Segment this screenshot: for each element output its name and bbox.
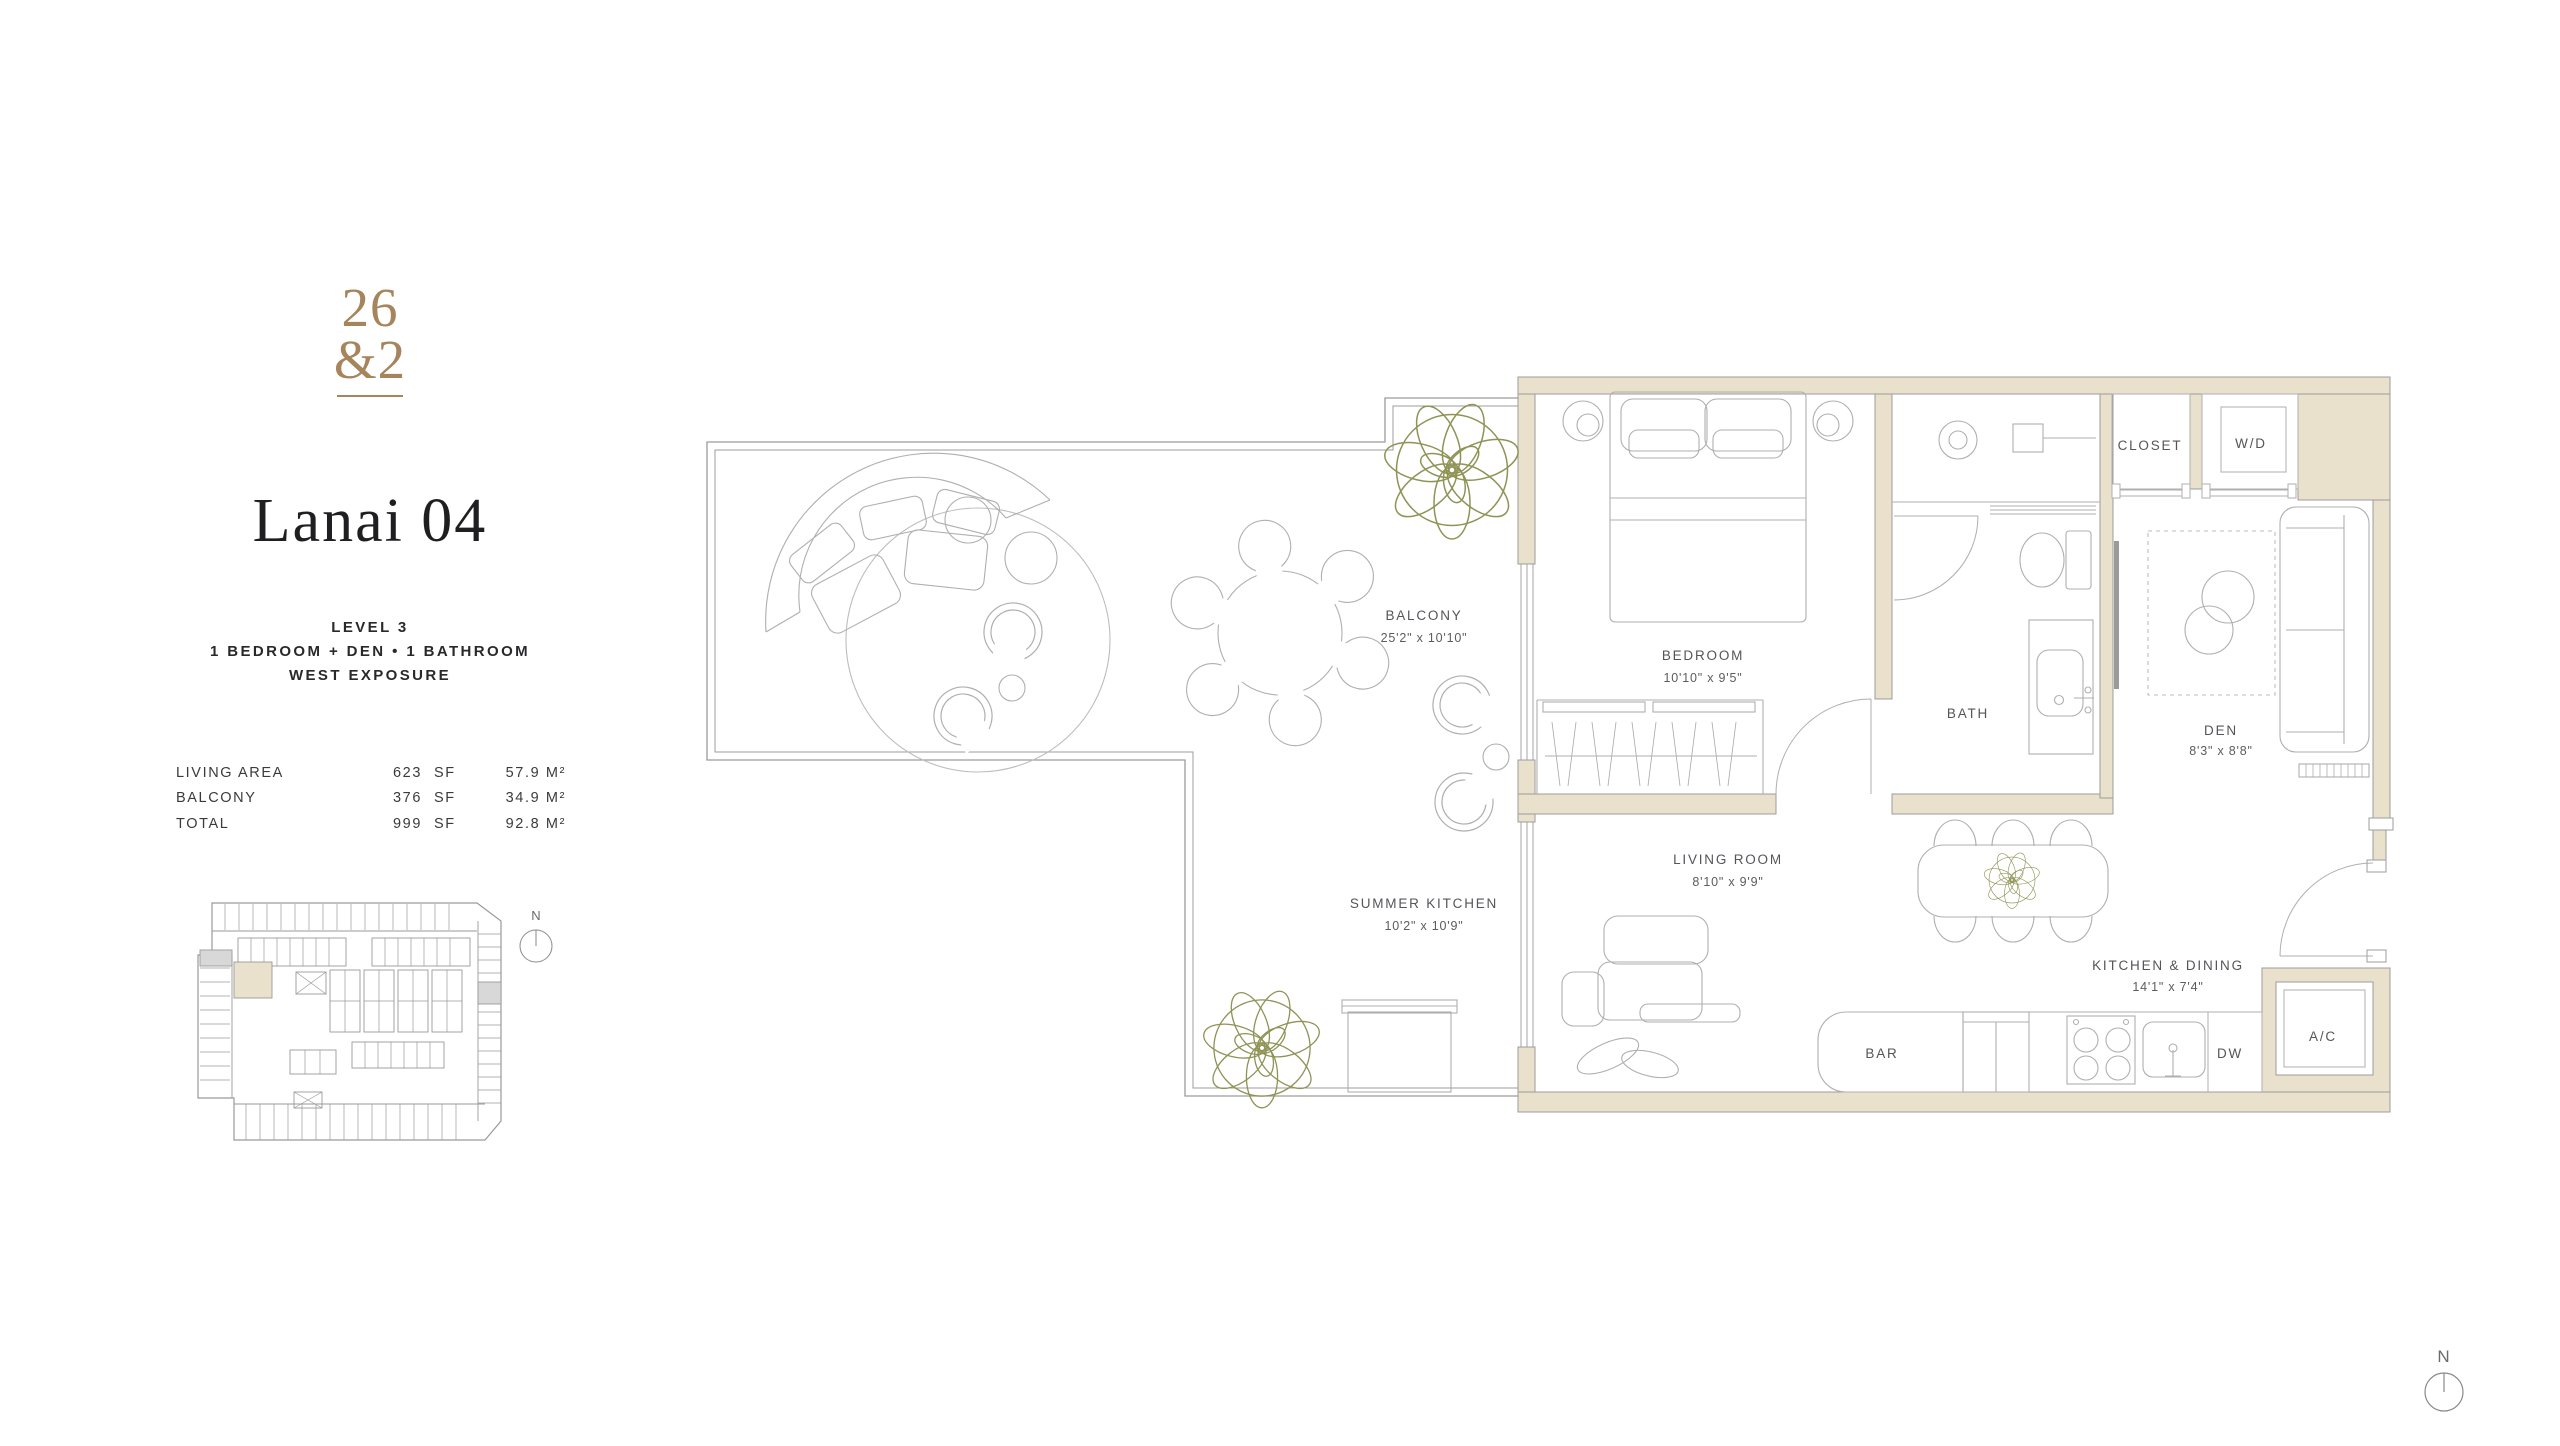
stove-knob [2124, 1020, 2129, 1025]
window-sill [2369, 818, 2393, 830]
shower-control [2013, 424, 2043, 452]
table-wreath [1983, 851, 2042, 909]
label-bar: BAR [1865, 1046, 1898, 1061]
plant-top [1381, 399, 1523, 539]
tv [2114, 541, 2119, 689]
bath-fixtures [1939, 421, 2096, 754]
closet-shelf [1543, 702, 1645, 712]
slider-cap [2112, 484, 2120, 498]
den-side-table [2185, 606, 2233, 654]
slider-cap [2182, 484, 2190, 498]
sectional-cushion [786, 520, 857, 586]
toilet-tank [2066, 531, 2091, 589]
shower-drain-inner [1949, 431, 1967, 449]
label-dw: DW [2217, 1046, 2243, 1061]
floorplan-drawing: BALCONY 25'2" x 10'10" SUMMER KITCHEN 10… [0, 0, 2560, 1446]
bed-sheet-lines [1610, 498, 1806, 520]
wall-closet-divider [2190, 394, 2202, 489]
kitchen-faucet [2165, 1050, 2181, 1076]
closet-hangers [1552, 722, 1736, 786]
slider-cap [2288, 484, 2296, 498]
slider-cap [2202, 484, 2210, 498]
den-sofa-cushions [2286, 515, 2344, 744]
dining-chair [1992, 916, 2034, 942]
burner [2074, 1056, 2098, 1080]
key-plan [198, 903, 501, 1140]
round-table-chair [1235, 516, 1296, 582]
window-chair [1423, 758, 1509, 843]
key-plan-unit-highlight [234, 962, 272, 998]
living-sofa-back [1604, 916, 1708, 964]
burner [2106, 1028, 2130, 1052]
window-chair [1426, 669, 1502, 741]
doors [1776, 516, 2373, 956]
label-ac: A/C [2309, 1029, 2337, 1044]
page-compass-n: N [2437, 1347, 2450, 1366]
wall-left-pier-top [1518, 394, 1535, 564]
round-table-chair [1176, 649, 1254, 726]
round-table-chair [1306, 540, 1384, 617]
dims-balcony: 25'2" x 10'10" [1381, 631, 1468, 645]
sectional-caps [766, 500, 1050, 632]
floorplan-sheet: 26 &2 Lanai 04 LEVEL 3 1 BEDROOM + DEN •… [0, 0, 2560, 1446]
wall-den-left [2100, 394, 2113, 798]
sectional-seat [808, 551, 904, 636]
nightstand-lamp-inner [1577, 414, 1599, 436]
label-bedroom: BEDROOM [1662, 648, 1744, 663]
shower-slider-track [1990, 506, 2096, 514]
dims-kitchen-dining: 14'1" x 7'4" [2132, 980, 2203, 994]
key-plan-cluster-lines [432, 970, 462, 1032]
key-plan-core-x [294, 1092, 322, 1108]
key-plan-stalls-left [200, 968, 230, 1080]
plants [1200, 399, 2041, 1108]
closet-slider [2116, 490, 2186, 496]
label-wd: W/D [2235, 436, 2267, 451]
room-labels: BALCONY 25'2" x 10'10" SUMMER KITCHEN 10… [1350, 436, 2337, 1061]
shower-drain [1939, 421, 1977, 459]
sectional-seat [903, 529, 988, 591]
kitchen-sink [2143, 1022, 2205, 1077]
pillow-inner [1713, 430, 1783, 458]
key-plan-stalls [385, 938, 450, 966]
small-table [999, 675, 1025, 701]
dims-den: 8'3" x 8'8" [2189, 744, 2252, 758]
bath-door [1894, 516, 1978, 600]
key-plan-stalls [365, 1042, 430, 1068]
key-plan-stalls-top [225, 904, 449, 930]
sectional-cushion [931, 488, 1001, 536]
living-window [1521, 822, 1533, 1047]
bed [1610, 392, 1806, 622]
label-kitchen-dining: KITCHEN & DINING [2092, 958, 2244, 973]
dining-chair [1934, 916, 1976, 942]
label-balcony: BALCONY [1385, 608, 1462, 623]
key-plan-gray-area [478, 982, 501, 1004]
pillow-inner [1629, 430, 1699, 458]
key-plan-compass: N [520, 908, 552, 962]
side-table [945, 497, 991, 543]
closet-shelf [1653, 702, 1755, 712]
label-living-room: LIVING ROOM [1673, 852, 1783, 867]
pillow [1705, 399, 1791, 451]
key-plan-cluster-lines [330, 970, 360, 1032]
key-plan-core-lines [305, 1050, 320, 1074]
wd-slider [2208, 490, 2292, 496]
wall-topright-block [2298, 394, 2390, 500]
label-den: DEN [2204, 723, 2238, 738]
toilet-bowl [2020, 533, 2064, 587]
sectional-cushion [858, 495, 928, 542]
sink [2037, 650, 2083, 716]
key-plan-stalls-right [478, 934, 501, 1103]
door-jamb-top [2367, 860, 2386, 872]
plant-bottom [1200, 986, 1323, 1107]
pillow [1621, 399, 1707, 451]
sectional-back-inner [799, 477, 1006, 612]
balcony-furniture [766, 453, 1509, 1092]
entry-door [2280, 863, 2373, 956]
burner [2106, 1056, 2130, 1080]
sink-drain [2055, 696, 2064, 705]
round-table-chair [1264, 684, 1325, 750]
dining-chair [2050, 916, 2092, 942]
dims-summer-kitchen: 10'2" x 10'9" [1385, 919, 1464, 933]
den-rug [2148, 531, 2275, 695]
faucet-handle [2085, 687, 2091, 693]
decor-leaf [1573, 1031, 1644, 1082]
living-furniture [1562, 916, 1740, 1083]
label-bath: BATH [1947, 706, 1989, 721]
key-compass-n: N [531, 908, 540, 923]
fridge-doors [1963, 1022, 2029, 1092]
key-plan-gray-area [200, 950, 232, 966]
key-plan-cluster-lines [364, 970, 394, 1032]
living-chaise [1640, 1004, 1740, 1022]
dims-bedroom: 10'10" x 9'5" [1664, 671, 1743, 685]
dims-living-room: 8'10" x 9'9" [1692, 875, 1763, 889]
vent-grille-lines [2306, 764, 2362, 777]
stove-knob [2074, 1020, 2079, 1025]
wall-bedroom-right [1875, 394, 1892, 699]
bedroom-furniture [1537, 392, 1853, 794]
wall-hall-left [1518, 794, 1776, 814]
dining-chair [2050, 820, 2092, 846]
label-summer-kitchen: SUMMER KITCHEN [1350, 896, 1498, 911]
key-plan-stalls-bottom [246, 1104, 456, 1140]
dining-chair [1934, 820, 1976, 846]
page-compass: N [2425, 1347, 2463, 1411]
balcony-armchair [979, 598, 1047, 670]
summer-kitchen-counter [1348, 1012, 1451, 1092]
balcony-armchair [923, 676, 1005, 760]
faucet-handle [2085, 707, 2091, 713]
key-plan-cluster-lines [398, 970, 428, 1032]
decor-leaf [1619, 1045, 1681, 1082]
bedroom-window [1521, 564, 1533, 760]
label-closet: CLOSET [2118, 438, 2183, 453]
round-table-chair [1164, 570, 1236, 639]
key-plan-core [290, 1050, 336, 1074]
dining-chair [1992, 820, 2034, 846]
wall-left-pier-bottom [1518, 1047, 1535, 1092]
wall-bottom [1518, 1092, 2390, 1112]
key-plan-core-x [296, 972, 326, 994]
burner [2074, 1028, 2098, 1052]
den-furniture [2114, 507, 2369, 777]
walls [1518, 377, 2390, 1112]
wall-hall-right [1892, 794, 2113, 814]
small-table [1483, 744, 1509, 770]
bedroom-door [1776, 699, 1871, 794]
side-table [1005, 532, 1057, 584]
nightstand-lamp-inner [1817, 414, 1839, 436]
living-sofa-seat [1598, 962, 1702, 1020]
key-plan-stall-row [372, 938, 470, 966]
